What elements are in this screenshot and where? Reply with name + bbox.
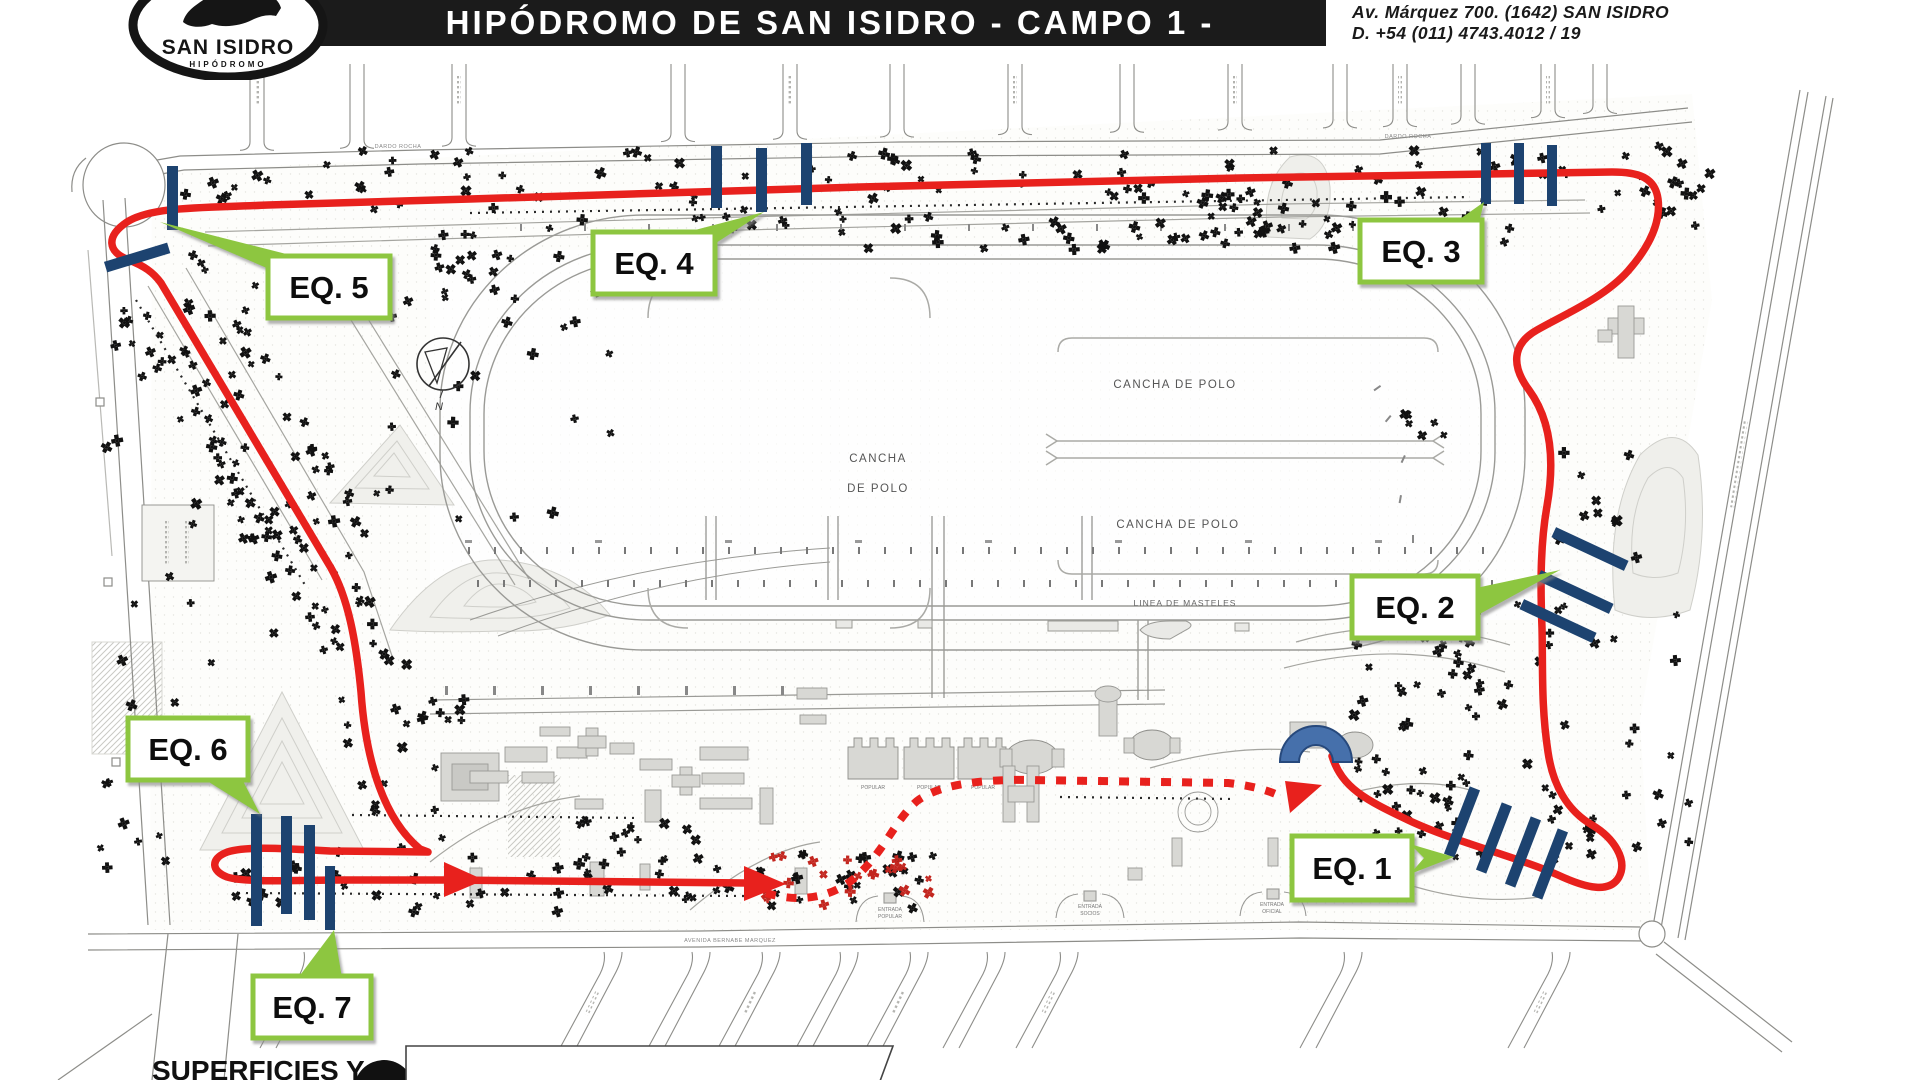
page-title: HIPÓDROMO DE SAN ISIDRO - CAMPO 1 - (340, 0, 1320, 46)
checkpoint-eq1-label: EQ. 1 (1312, 851, 1391, 886)
checkpoint-eq4-label: EQ. 4 (614, 246, 694, 281)
checkpoint-eq7-label: EQ. 7 (272, 990, 351, 1025)
compass-n-label: N (435, 401, 443, 413)
eq4-bar-2 (756, 148, 767, 212)
eq4-bar-3 (801, 143, 812, 205)
legend-prefix: SUPERFICIES Y (152, 1055, 365, 1080)
entrance-socios-line1: ENTRADA (1078, 904, 1103, 910)
address-line-1: Av. Márquez 700. (1642) SAN ISIDRO (1352, 2, 1669, 23)
entrance-oficial-line2: OFICIAL (1262, 909, 1282, 915)
entrance-socios-line2: SOCIOS (1080, 911, 1100, 917)
street-south-label: AVENIDA BERNABE MARQUEZ (684, 938, 776, 944)
eq7-bar-1 (325, 866, 335, 930)
course-map: CANCHA DE POLO CANCHA DE POLO CANCHA DE … (0, 0, 1920, 1080)
polo-left-label-1: CANCHA (849, 453, 907, 465)
eq6-bar-2 (281, 816, 292, 914)
eq6-bar-3 (304, 825, 315, 920)
eq3-bar-1 (1481, 143, 1491, 204)
polo-top-label: CANCHA DE POLO (1113, 379, 1236, 391)
eq6-bar-1 (251, 814, 262, 926)
checkpoint-eq2-label: EQ. 2 (1375, 590, 1454, 625)
eq3-bar-2 (1514, 143, 1524, 204)
stand-popular-1: POPULAR (861, 785, 885, 791)
header: HIPÓDROMO DE SAN ISIDRO - CAMPO 1 - Av. … (0, 0, 1920, 64)
street-top-label-1: DARDO ROCHA (375, 144, 422, 150)
checkpoint-eq7: EQ. 7 (253, 930, 371, 1038)
address-line-2: D. +54 (011) 4743.4012 / 19 (1352, 23, 1669, 44)
checkpoint-eq3-label: EQ. 3 (1381, 234, 1460, 269)
eq4-bar-1 (711, 146, 722, 208)
checkpoint-eq5-label: EQ. 5 (289, 270, 368, 305)
polo-bottom-label: CANCHA DE POLO (1116, 519, 1239, 531)
logo-text-1: SAN ISIDRO (162, 36, 295, 59)
polo-left-label-2: DE POLO (847, 483, 909, 495)
masts-line-label: LINEA DE MASTELES (1134, 598, 1237, 608)
eq3-bar-3 (1547, 145, 1557, 206)
entrance-oficial-line1: ENTRADA (1260, 902, 1285, 908)
checkpoint-eq6-label: EQ. 6 (148, 732, 227, 767)
club-logo: SAN ISIDRO HIPÓDROMO (128, 0, 328, 80)
eq5-bar-1 (167, 166, 178, 230)
legend-box (406, 1046, 893, 1080)
header-address: Av. Márquez 700. (1642) SAN ISIDRO D. +5… (1352, 2, 1669, 44)
legend-strip: SUPERFICIES Y (152, 1046, 893, 1080)
entrance-popular-line1: ENTRADA (878, 907, 903, 913)
logo-text-2: HIPÓDROMO (189, 60, 266, 69)
entrance-popular-line2: POPULAR (878, 914, 902, 920)
street-top-label-2: DARDO ROCHA (1385, 134, 1432, 140)
